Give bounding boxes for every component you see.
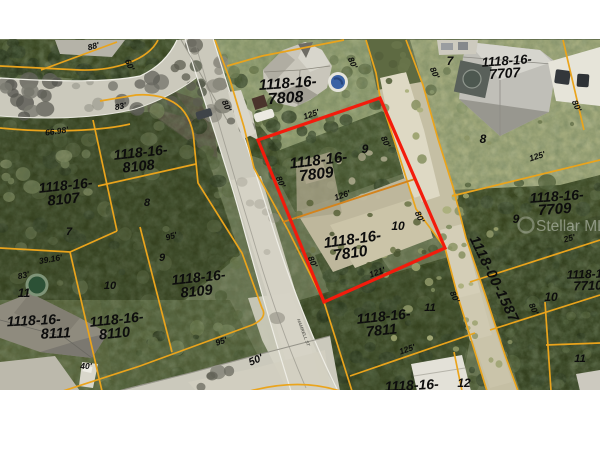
svg-text:11: 11 (574, 353, 585, 365)
svg-text:10: 10 (104, 280, 117, 292)
svg-text:40': 40' (79, 361, 92, 371)
svg-text:9: 9 (362, 142, 369, 156)
svg-text:8109: 8109 (180, 282, 214, 301)
svg-text:7: 7 (66, 226, 73, 238)
svg-text:7707: 7707 (489, 64, 522, 82)
svg-text:11: 11 (18, 286, 31, 300)
svg-text:11: 11 (424, 302, 435, 314)
svg-text:7709: 7709 (537, 200, 572, 219)
svg-text:7811: 7811 (365, 321, 398, 340)
svg-text:7710: 7710 (573, 277, 600, 293)
svg-text:9: 9 (159, 252, 166, 264)
svg-text:7808: 7808 (267, 89, 304, 108)
svg-text:8110: 8110 (98, 324, 131, 343)
svg-text:8: 8 (144, 197, 151, 209)
svg-text:12: 12 (457, 376, 471, 390)
svg-text:10: 10 (391, 219, 405, 233)
svg-text:Stellar MLS: Stellar MLS (536, 218, 600, 235)
svg-text:8: 8 (480, 132, 487, 146)
svg-text:10: 10 (544, 290, 558, 304)
svg-text:8111: 8111 (40, 325, 71, 343)
